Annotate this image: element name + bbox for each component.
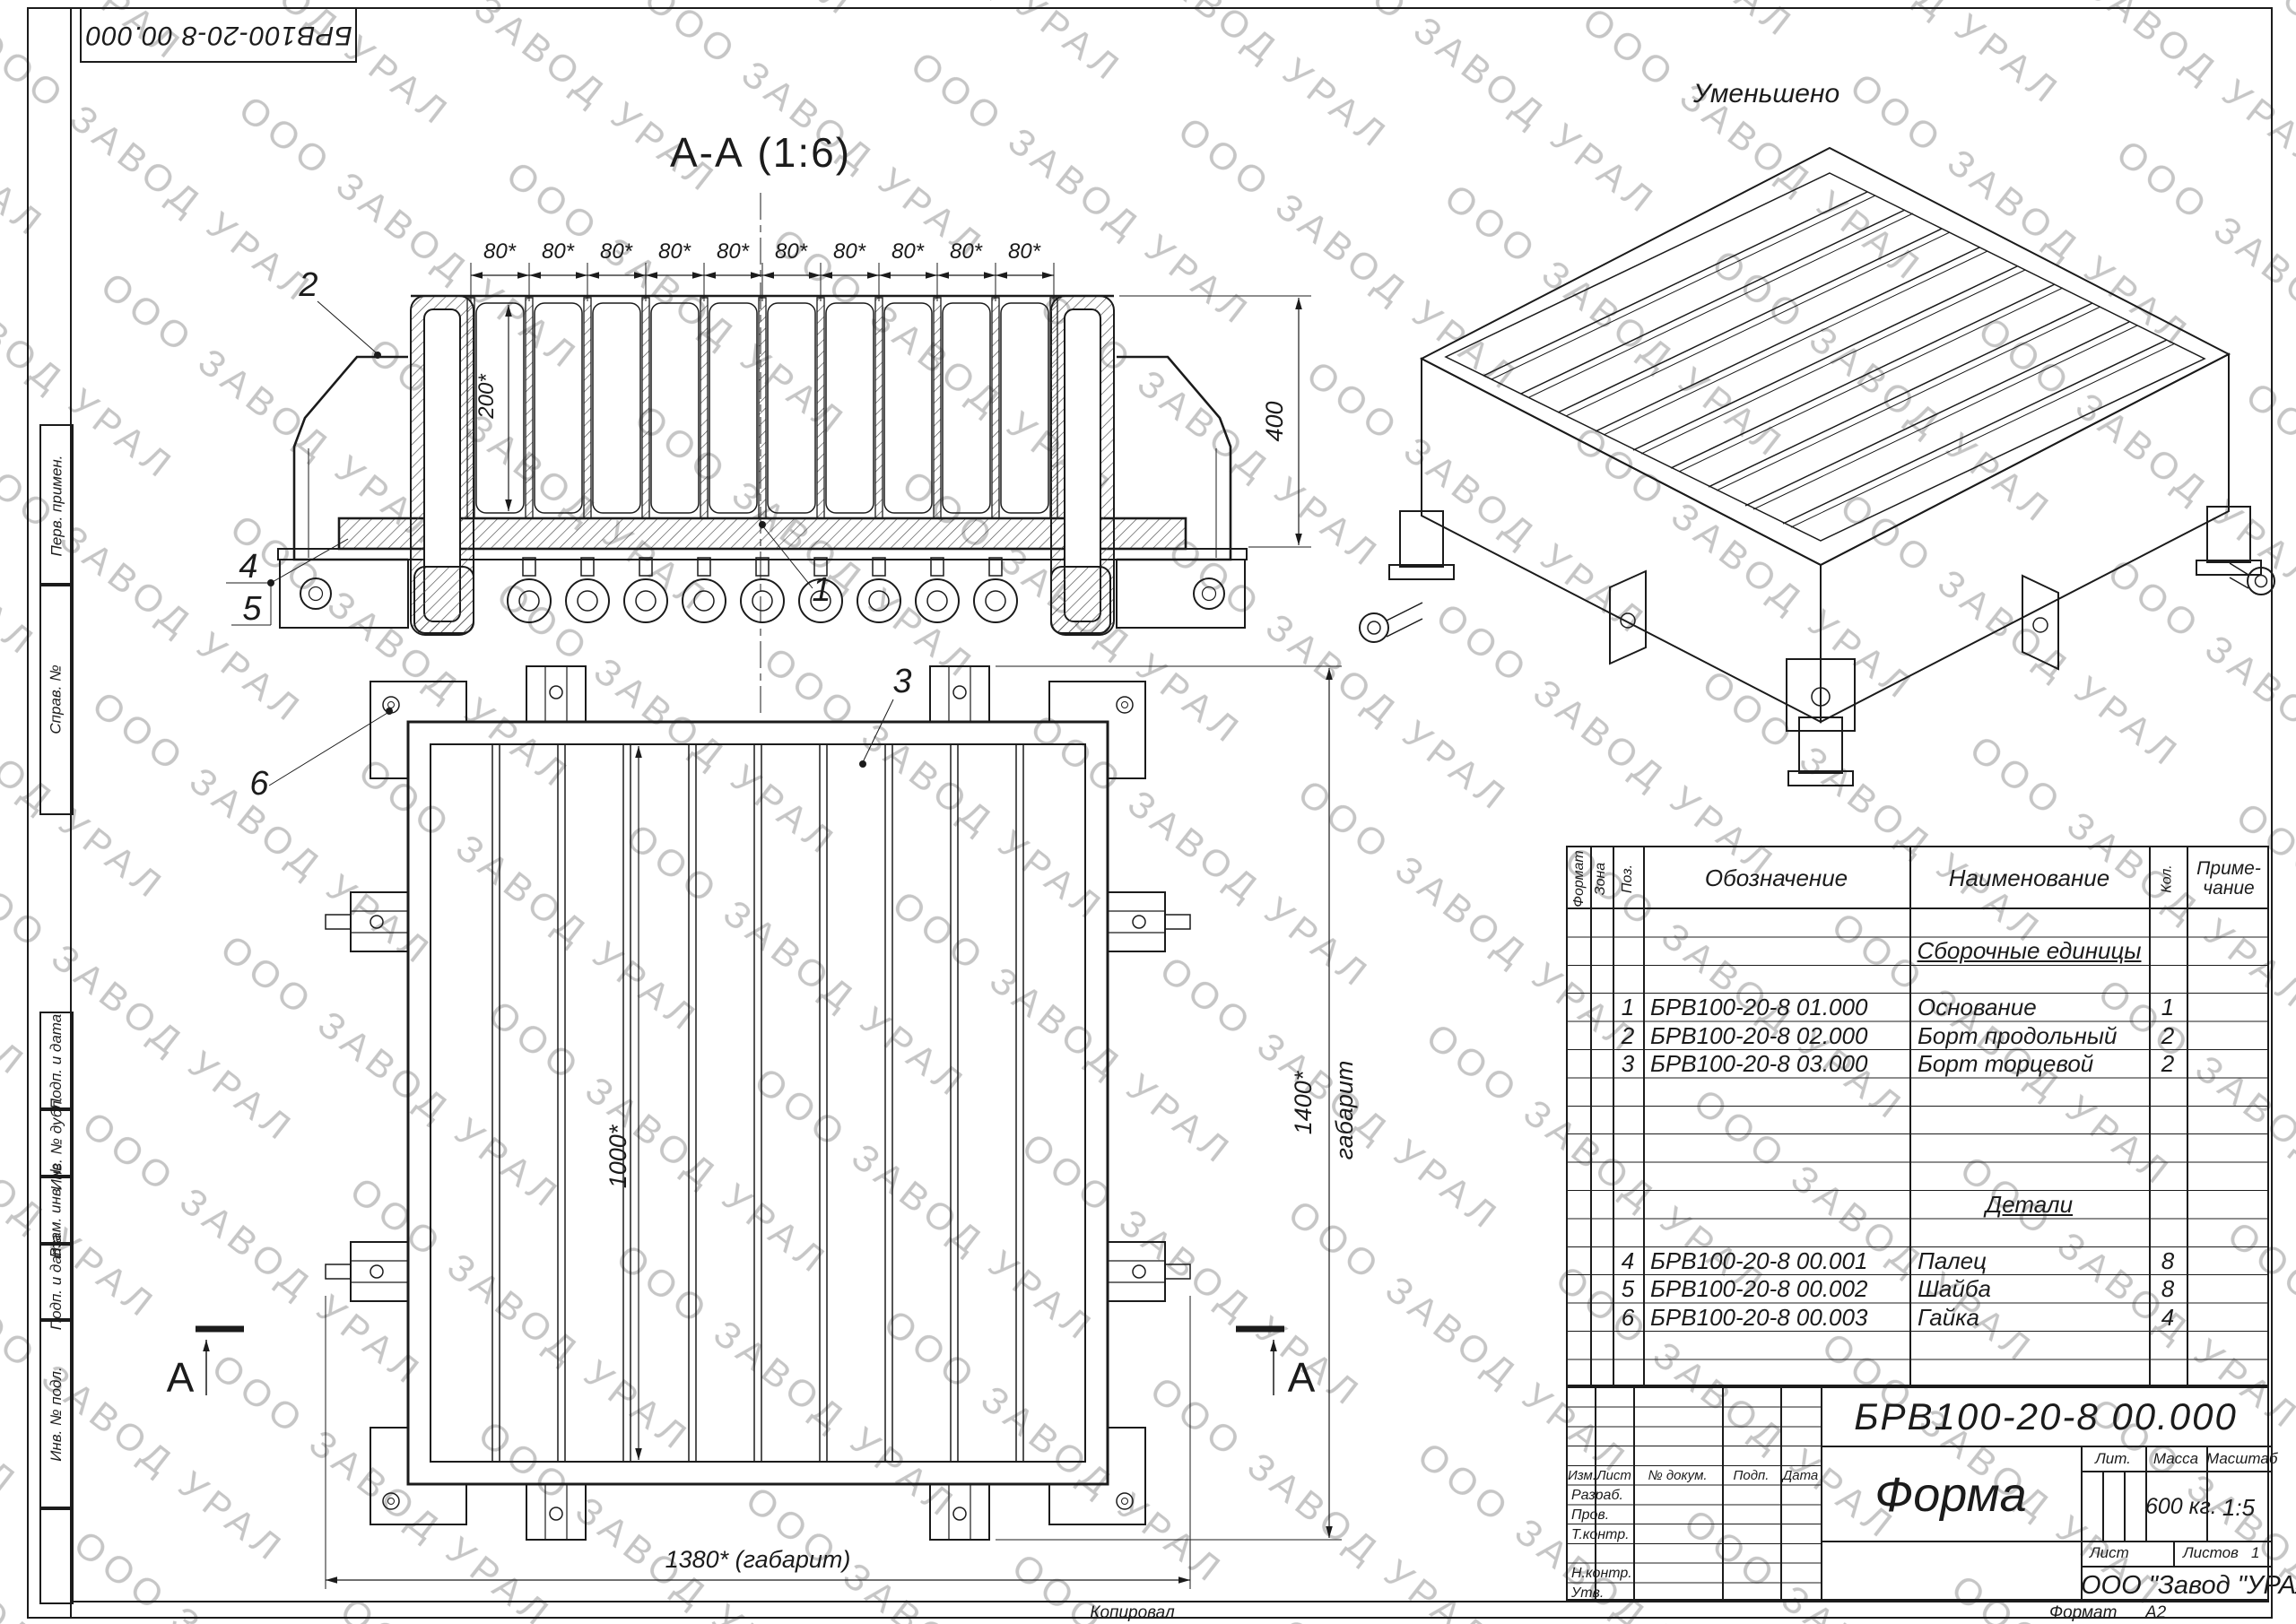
- sheets-value: 1: [2251, 1544, 2259, 1562]
- spec-qty: 8: [2149, 1275, 2187, 1303]
- margin-box-inv-podl: Инв. № подл.: [39, 1318, 74, 1510]
- spec-qty: 1: [2149, 994, 2187, 1021]
- title-product-name: Форма: [1821, 1467, 2081, 1523]
- spec-group-assemblies: Сборочные единицы: [1909, 937, 2149, 965]
- spec-header-name: Наименование: [1909, 847, 2149, 909]
- spec-designation: БРВ100-20-8 03.000: [1650, 1050, 1867, 1078]
- sheets-label: Листов: [2183, 1544, 2239, 1562]
- role-utv: Утв.: [1571, 1585, 1604, 1602]
- mass-value: 600 кг.: [2145, 1494, 2206, 1520]
- role-prov: Пров.: [1571, 1507, 1609, 1524]
- spec-name: Гайка: [1918, 1304, 1979, 1332]
- lit-label: Лит.: [2081, 1450, 2145, 1468]
- spec-designation: БРВ100-20-8 00.003: [1650, 1304, 1867, 1332]
- sign-label: Подп.: [1722, 1468, 1780, 1483]
- format-value: А2: [2145, 1603, 2166, 1623]
- spec-designation: БРВ100-20-8 00.001: [1650, 1247, 1867, 1275]
- spec-header-designation: Обозначение: [1643, 847, 1909, 909]
- spec-poz: 6: [1613, 1304, 1643, 1332]
- spec-qty: 8: [2149, 1247, 2187, 1275]
- company-name: ООО "Завод "УРАЛ": [2081, 1571, 2271, 1601]
- spec-poz: 5: [1613, 1275, 1643, 1303]
- spec-header-qty: Кол.: [2149, 847, 2187, 909]
- spec-qty: 2: [2149, 1022, 2187, 1050]
- margin-box-empty: [39, 1507, 74, 1604]
- margin-box-sprav-no: Справ. №: [39, 583, 74, 815]
- spec-group-parts: Детали: [1909, 1191, 2149, 1219]
- date-label: Дата: [1780, 1468, 1821, 1483]
- spec-qty: 2: [2149, 1050, 2187, 1078]
- spec-name: Борт продольный: [1918, 1022, 2117, 1050]
- doc-label: № докум.: [1633, 1468, 1722, 1483]
- spec-poz: 4: [1613, 1247, 1643, 1275]
- spec-table: Формат Зона Поз. Обозначение Наименовани…: [1566, 846, 2269, 1386]
- spec-designation: БРВ100-20-8 01.000: [1650, 994, 1867, 1021]
- spec-poz: 2: [1613, 1022, 1643, 1050]
- format-label: Формат: [2049, 1603, 2117, 1623]
- copied-label: Копировал: [1072, 1603, 1193, 1623]
- top-designation-text: БРВ100-20-8 00.000: [85, 20, 352, 50]
- spec-poz: 1: [1613, 994, 1643, 1021]
- spec-header-zone: Зона: [1590, 847, 1613, 909]
- margin-box-podp-data-2: Подп. и дата: [39, 1242, 74, 1322]
- top-designation-stamp: БРВ100-20-8 00.000: [80, 7, 357, 63]
- spec-designation: БРВ100-20-8 00.002: [1650, 1275, 1867, 1303]
- spec-header-pos: Поз.: [1613, 847, 1643, 909]
- spec-poz: 3: [1613, 1050, 1643, 1078]
- izm-label: Изм.: [1568, 1468, 1595, 1483]
- role-razrab: Разраб.: [1571, 1488, 1623, 1504]
- spec-name: Шайба: [1918, 1275, 1991, 1303]
- spec-designation: БРВ100-20-8 02.000: [1650, 1022, 1867, 1050]
- spec-header-note: Приме- чание: [2187, 847, 2271, 909]
- mass-label: Масса: [2145, 1450, 2206, 1468]
- scale-label: Масштаб: [2206, 1450, 2271, 1468]
- title-block: БРВ100-20-8 00.000 Форма Лит. Масса Масш…: [1566, 1386, 2269, 1601]
- drawing-sheet: ООО ЗАВОД УРАЛ ООО ЗАВОД УРАЛ ООО ЗАВОД …: [0, 0, 2296, 1624]
- spec-qty: 4: [2149, 1304, 2187, 1332]
- spec-header-format: Формат: [1568, 847, 1590, 909]
- role-tkontr: Т.контр.: [1571, 1527, 1630, 1543]
- list-label: Лист: [1595, 1468, 1633, 1483]
- spec-name: Борт торцевой: [1918, 1050, 2093, 1078]
- spec-name: Палец: [1918, 1247, 1987, 1275]
- title-designation: БРВ100-20-8 00.000: [1821, 1395, 2271, 1438]
- sheet-label: Лист: [2090, 1544, 2129, 1562]
- spec-name: Основание: [1918, 994, 2037, 1021]
- role-nkontr: Н.контр.: [1571, 1566, 1632, 1582]
- scale-value: 1:5: [2206, 1494, 2271, 1522]
- margin-box-perv-primen: Перв. примен.: [39, 424, 74, 586]
